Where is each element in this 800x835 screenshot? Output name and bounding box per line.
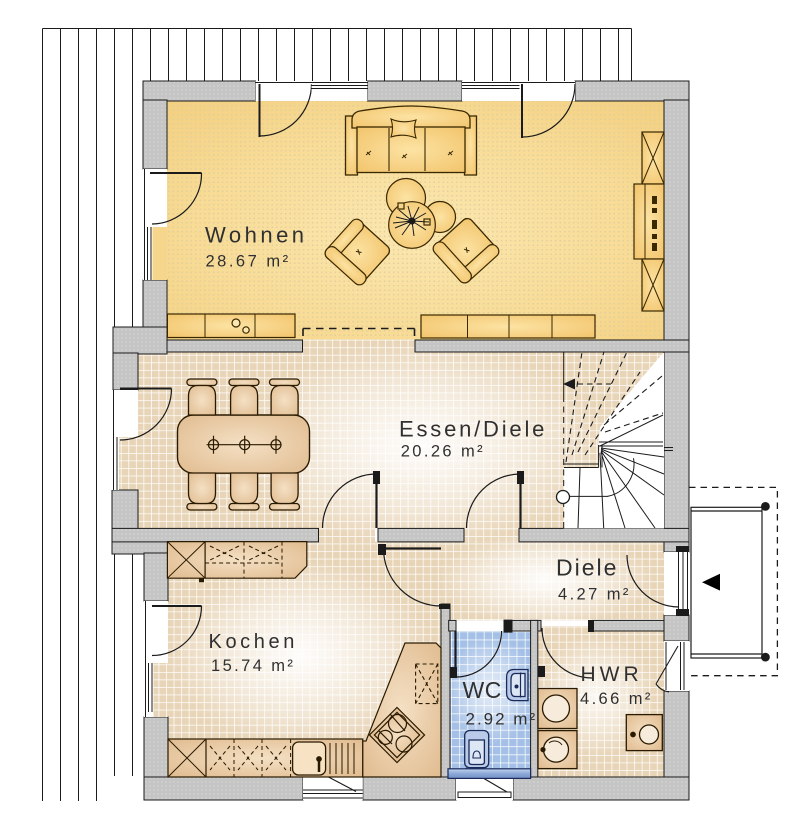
svg-text:Essen/Diele: Essen/Diele	[399, 416, 547, 441]
svg-text:WC: WC	[463, 677, 502, 703]
svg-text:28.67 m²: 28.67 m²	[206, 252, 291, 270]
svg-text:Diele: Diele	[556, 555, 618, 581]
svg-text:HWR: HWR	[581, 663, 643, 686]
svg-text:Kochen: Kochen	[209, 631, 298, 653]
svg-text:4.66 m²: 4.66 m²	[580, 690, 653, 708]
svg-text:4.27 m²: 4.27 m²	[558, 585, 631, 603]
svg-text:Wohnen: Wohnen	[205, 222, 308, 247]
svg-text:15.74 m²: 15.74 m²	[211, 657, 295, 675]
svg-text:2.92 m²: 2.92 m²	[466, 710, 538, 729]
svg-text:20.26 m²: 20.26 m²	[401, 442, 485, 460]
